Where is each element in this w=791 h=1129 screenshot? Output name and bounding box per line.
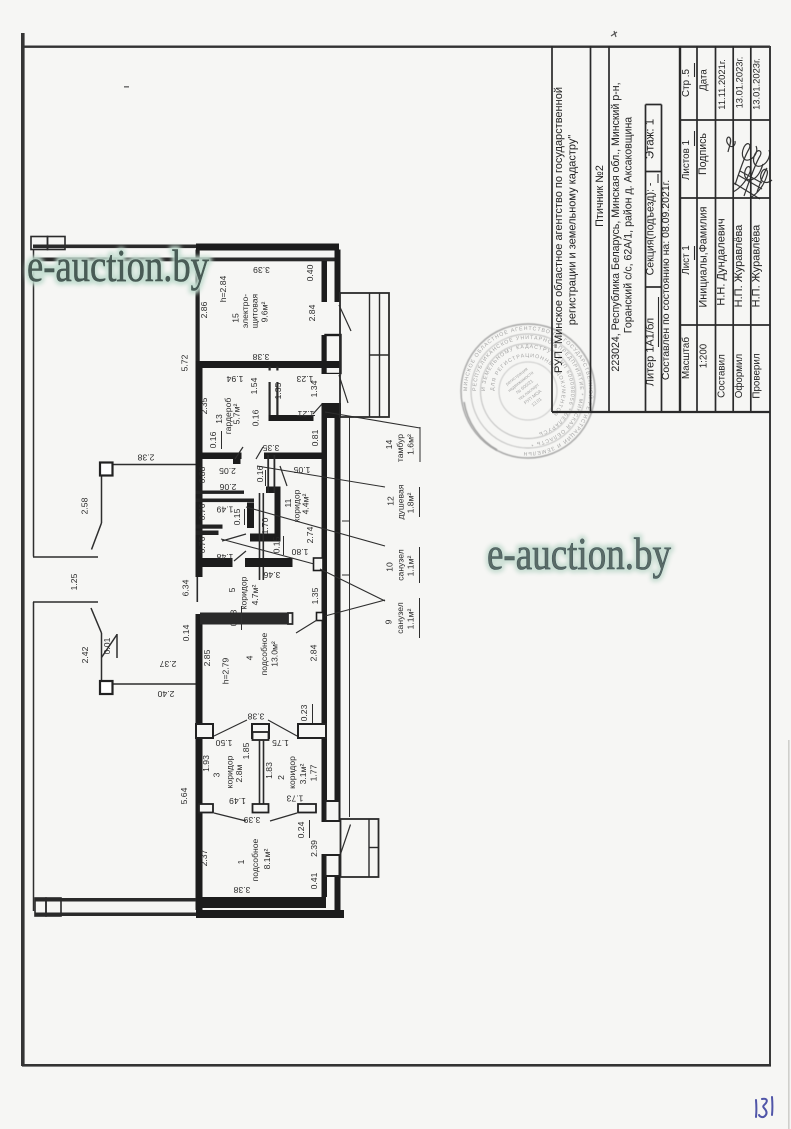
svg-text:2.86: 2.86 bbox=[199, 301, 209, 318]
svg-text:Н.Н. Дундалевич: Н.Н. Дундалевич bbox=[716, 218, 728, 305]
svg-text:1.49: 1.49 bbox=[216, 505, 233, 515]
svg-text:1.77: 1.77 bbox=[309, 764, 319, 781]
svg-text:5: 5 bbox=[227, 587, 237, 592]
svg-text:1.48: 1.48 bbox=[216, 552, 233, 562]
svg-text:14: 14 bbox=[384, 440, 394, 450]
svg-text:2.8м: 2.8м bbox=[234, 764, 244, 782]
svg-text:коридор: коридор bbox=[225, 755, 235, 788]
svg-text:h=2.84: h=2.84 bbox=[218, 276, 228, 303]
svg-text:1.94: 1.94 bbox=[226, 374, 243, 384]
svg-text:9.6м²: 9.6м² bbox=[260, 302, 270, 323]
svg-text:1.34: 1.34 bbox=[309, 380, 319, 397]
svg-text:1.8м²: 1.8м² bbox=[406, 493, 416, 514]
svg-text:регистрации и земельному кадас: регистрации и земельному кадастру" bbox=[567, 135, 579, 326]
svg-text:душевая: душевая bbox=[396, 484, 406, 519]
svg-text:коридор: коридор bbox=[239, 576, 249, 609]
svg-text:Горанский с/с, 62А/1, район д.: Горанский с/с, 62А/1, район д. Аксаковщи… bbox=[623, 117, 635, 333]
svg-text:2.84: 2.84 bbox=[307, 304, 317, 321]
svg-text:8.1м²: 8.1м² bbox=[262, 849, 272, 870]
svg-text:13.01.2023г.: 13.01.2023г. bbox=[734, 57, 745, 109]
svg-text:0.88: 0.88 bbox=[197, 466, 207, 483]
svg-text:1.54: 1.54 bbox=[249, 377, 259, 394]
svg-text:1.35: 1.35 bbox=[310, 587, 320, 604]
svg-text:2.85: 2.85 bbox=[202, 649, 212, 666]
svg-text:15: 15 bbox=[231, 313, 241, 323]
svg-text:1.21: 1.21 bbox=[297, 409, 314, 419]
svg-text:3.39: 3.39 bbox=[253, 265, 270, 275]
svg-text:3.39: 3.39 bbox=[243, 815, 260, 825]
svg-text:0.41: 0.41 bbox=[309, 872, 319, 889]
svg-text:4: 4 bbox=[245, 655, 255, 660]
svg-text:3.38: 3.38 bbox=[233, 885, 250, 895]
svg-text:2: 2 bbox=[276, 775, 286, 780]
svg-text:Масштаб: Масштаб bbox=[681, 337, 692, 379]
svg-text:13.01.2023г.: 13.01.2023г. bbox=[751, 58, 762, 110]
svg-text:4.7м²: 4.7м² bbox=[250, 585, 260, 606]
svg-text:5.72: 5.72 bbox=[180, 354, 190, 371]
svg-text:Литер 1А1/бл: Литер 1А1/бл bbox=[645, 318, 657, 386]
svg-text:2.74: 2.74 bbox=[305, 526, 315, 543]
svg-text:1.35: 1.35 bbox=[273, 382, 283, 399]
svg-text:1.93: 1.93 bbox=[201, 755, 211, 772]
svg-text:2.37: 2.37 bbox=[159, 659, 176, 669]
svg-text:Инициалы,Фамилия: Инициалы,Фамилия bbox=[698, 206, 710, 307]
svg-text:санузел: санузел bbox=[395, 602, 405, 633]
svg-text:Секция(подъезд): -: Секция(подъезд): - bbox=[645, 182, 657, 275]
svg-text:2.84: 2.84 bbox=[309, 644, 319, 661]
svg-text:4.4м²: 4.4м² bbox=[301, 494, 311, 515]
svg-text:0.01: 0.01 bbox=[102, 637, 112, 654]
svg-text:1.85: 1.85 bbox=[241, 742, 251, 759]
svg-text:Лист 1: Лист 1 bbox=[681, 245, 692, 274]
svg-text:0.16: 0.16 bbox=[208, 431, 218, 448]
svg-text:Н.П. Журавлёва: Н.П. Журавлёва bbox=[733, 224, 745, 308]
svg-text:5.7м²: 5.7м² bbox=[232, 404, 242, 425]
svg-text:2.58: 2.58 bbox=[80, 497, 90, 514]
svg-text:щитовая: щитовая bbox=[250, 293, 260, 328]
svg-text:e-auction.by: e-auction.by bbox=[27, 240, 209, 291]
svg-text:9: 9 bbox=[384, 619, 394, 624]
svg-text:Стр .5: Стр .5 bbox=[681, 68, 692, 96]
svg-text:10: 10 bbox=[385, 562, 395, 572]
svg-text:h=2.79: h=2.79 bbox=[221, 658, 231, 685]
svg-text:Подпись: Подпись bbox=[697, 133, 709, 175]
svg-text:1.49: 1.49 bbox=[229, 796, 246, 806]
svg-text:0.14: 0.14 bbox=[181, 624, 191, 641]
svg-text:коридор: коридор bbox=[287, 756, 297, 789]
svg-text:3.1м²: 3.1м² bbox=[298, 764, 308, 785]
svg-text:0.76: 0.76 bbox=[197, 536, 207, 553]
svg-text:13.0м²: 13.0м² bbox=[270, 641, 280, 667]
svg-text:e-auction.by: e-auction.by bbox=[487, 528, 671, 579]
svg-text:Н.П. Журавлёва: Н.П. Журавлёва bbox=[751, 224, 763, 308]
svg-text:1.83: 1.83 bbox=[264, 762, 274, 779]
svg-text:Оформил: Оформил bbox=[734, 353, 745, 398]
svg-text:2.38: 2.38 bbox=[137, 453, 154, 463]
svg-text:1.73: 1.73 bbox=[286, 794, 303, 804]
svg-text:0.23: 0.23 bbox=[229, 609, 239, 626]
svg-text:2.40: 2.40 bbox=[157, 689, 174, 699]
svg-text:3.46: 3.46 bbox=[263, 570, 280, 580]
svg-text:0.40: 0.40 bbox=[305, 264, 315, 281]
svg-text:1.80: 1.80 bbox=[291, 547, 308, 557]
svg-text:1: 1 bbox=[236, 859, 246, 864]
svg-text:Листов 1: Листов 1 bbox=[681, 140, 692, 180]
svg-text:1:200: 1:200 bbox=[699, 343, 710, 368]
svg-text:электро-: электро- bbox=[240, 294, 250, 328]
svg-text:2.06: 2.06 bbox=[219, 482, 236, 492]
svg-text:0.16: 0.16 bbox=[251, 409, 261, 426]
svg-text:РУП "Минское областное агентст: РУП "Минское областное агентство по госу… bbox=[553, 87, 565, 373]
svg-text:5.64: 5.64 bbox=[179, 787, 189, 804]
svg-text:1.1м²: 1.1м² bbox=[406, 556, 416, 577]
svg-text:0.23: 0.23 bbox=[299, 704, 309, 721]
svg-text:Птичник №2: Птичник №2 bbox=[594, 165, 606, 227]
svg-text:0.24: 0.24 bbox=[296, 821, 306, 838]
svg-text:6.34: 6.34 bbox=[181, 579, 191, 596]
svg-text:11.11.2021г.: 11.11.2021г. bbox=[716, 59, 727, 109]
svg-text:Составил: Составил bbox=[717, 354, 728, 398]
svg-text:3.38: 3.38 bbox=[252, 352, 269, 362]
svg-text:3: 3 bbox=[212, 772, 222, 777]
svg-text:1.70: 1.70 bbox=[260, 517, 270, 534]
svg-text:1.6м²: 1.6м² bbox=[406, 434, 416, 455]
svg-text:2.05: 2.05 bbox=[219, 466, 236, 476]
svg-text:Проверил: Проверил bbox=[752, 353, 763, 398]
svg-text:2.42: 2.42 bbox=[80, 646, 90, 663]
svg-text:тамбур: тамбур bbox=[395, 434, 405, 462]
svg-text:Этаж: 1: Этаж: 1 bbox=[645, 119, 657, 159]
svg-text:0.76: 0.76 bbox=[197, 503, 207, 520]
svg-text:1.75: 1.75 bbox=[272, 738, 289, 748]
svg-text:0.81: 0.81 bbox=[310, 429, 320, 446]
svg-text:1.25: 1.25 bbox=[69, 573, 79, 590]
svg-text:2.35: 2.35 bbox=[199, 397, 209, 414]
svg-text:Дата: Дата bbox=[699, 69, 710, 91]
svg-text:санузел: санузел bbox=[396, 549, 406, 580]
svg-text:223024, Республика Беларусь, М: 223024, Республика Беларусь, Минская обл… bbox=[610, 82, 622, 371]
svg-text:12: 12 bbox=[386, 496, 396, 506]
svg-text:подсобное: подсобное bbox=[250, 838, 260, 881]
svg-text:2.37: 2.37 bbox=[199, 849, 209, 866]
svg-text:0.16: 0.16 bbox=[255, 465, 265, 482]
svg-text:1.50: 1.50 bbox=[215, 738, 232, 748]
svg-text:2.39: 2.39 bbox=[309, 840, 319, 857]
svg-text:0.15: 0.15 bbox=[272, 536, 282, 553]
svg-text:подсобное: подсобное bbox=[259, 632, 269, 675]
svg-text:Составлен по состоянию на: 08: Составлен по состоянию на: 08.09.2021г. bbox=[660, 180, 672, 380]
svg-text:1.1м²: 1.1м² bbox=[406, 609, 416, 630]
svg-text:3.38: 3.38 bbox=[247, 712, 264, 722]
svg-text:3.35: 3.35 bbox=[262, 443, 279, 453]
svg-text:1.05: 1.05 bbox=[293, 465, 310, 475]
